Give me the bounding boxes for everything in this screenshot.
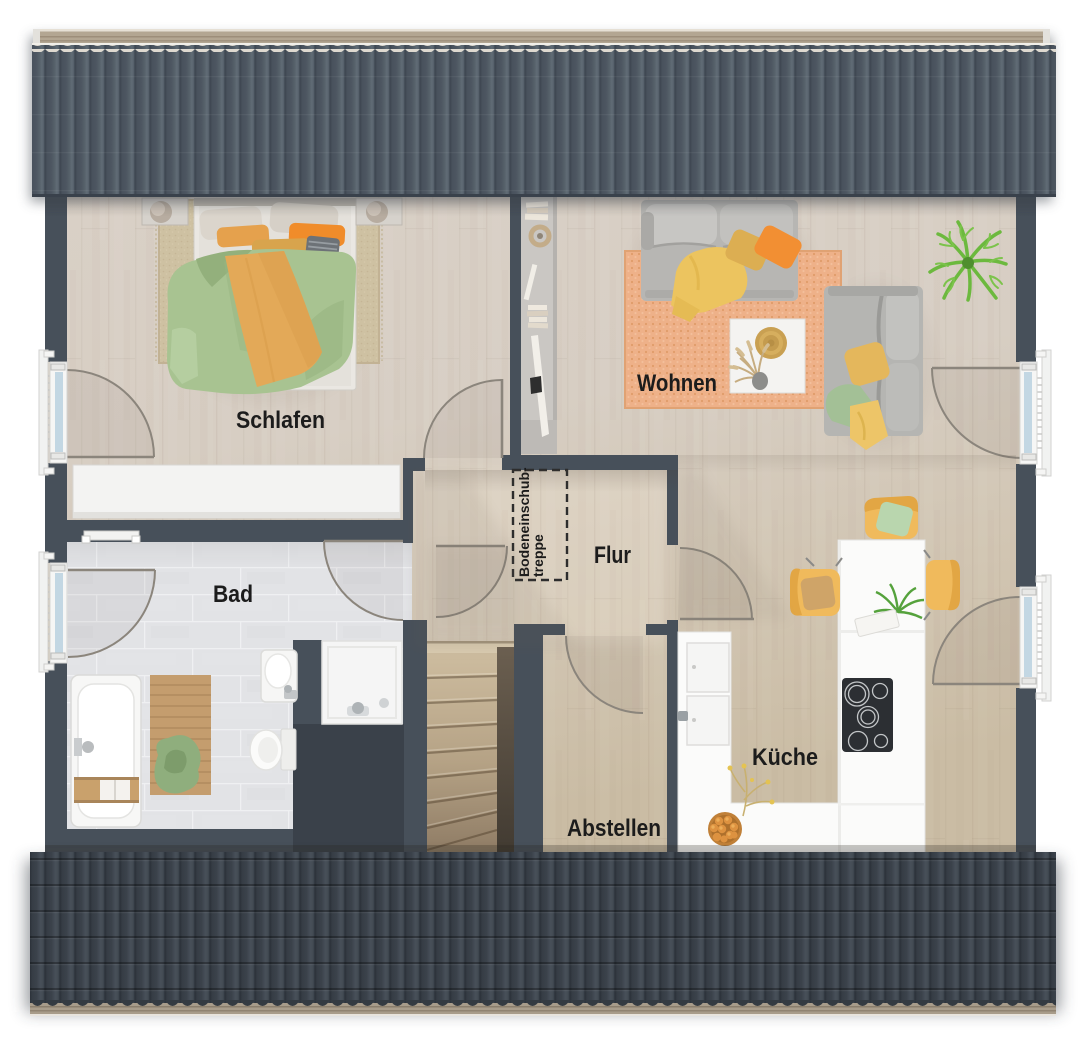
svg-text:Wohnen: Wohnen [637,370,717,397]
svg-text:treppe: treppe [530,534,546,577]
svg-text:Abstellen: Abstellen [567,815,661,842]
svg-text:Bad: Bad [213,581,253,608]
svg-text:Küche: Küche [752,744,818,771]
svg-text:Schlafen: Schlafen [236,407,325,434]
svg-text:Flur: Flur [594,542,631,569]
